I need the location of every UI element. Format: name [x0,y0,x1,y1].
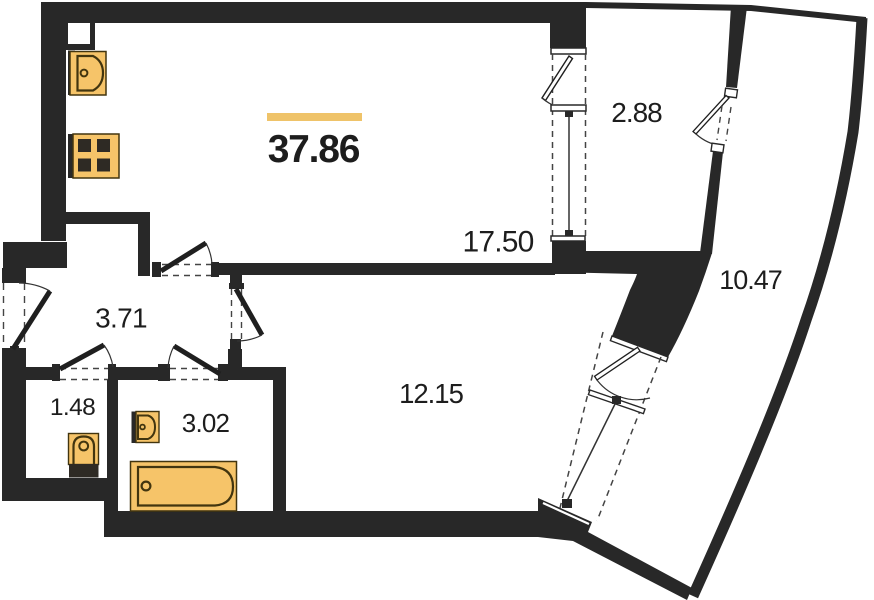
svg-text:37.86: 37.86 [268,128,360,171]
svg-text:17.50: 17.50 [462,226,533,259]
svg-text:10.47: 10.47 [719,265,782,295]
svg-text:12.15: 12.15 [399,378,464,409]
svg-text:1.48: 1.48 [50,394,95,421]
svg-text:2.88: 2.88 [611,97,662,128]
svg-text:3.71: 3.71 [95,303,147,334]
svg-text:3.02: 3.02 [182,408,230,438]
